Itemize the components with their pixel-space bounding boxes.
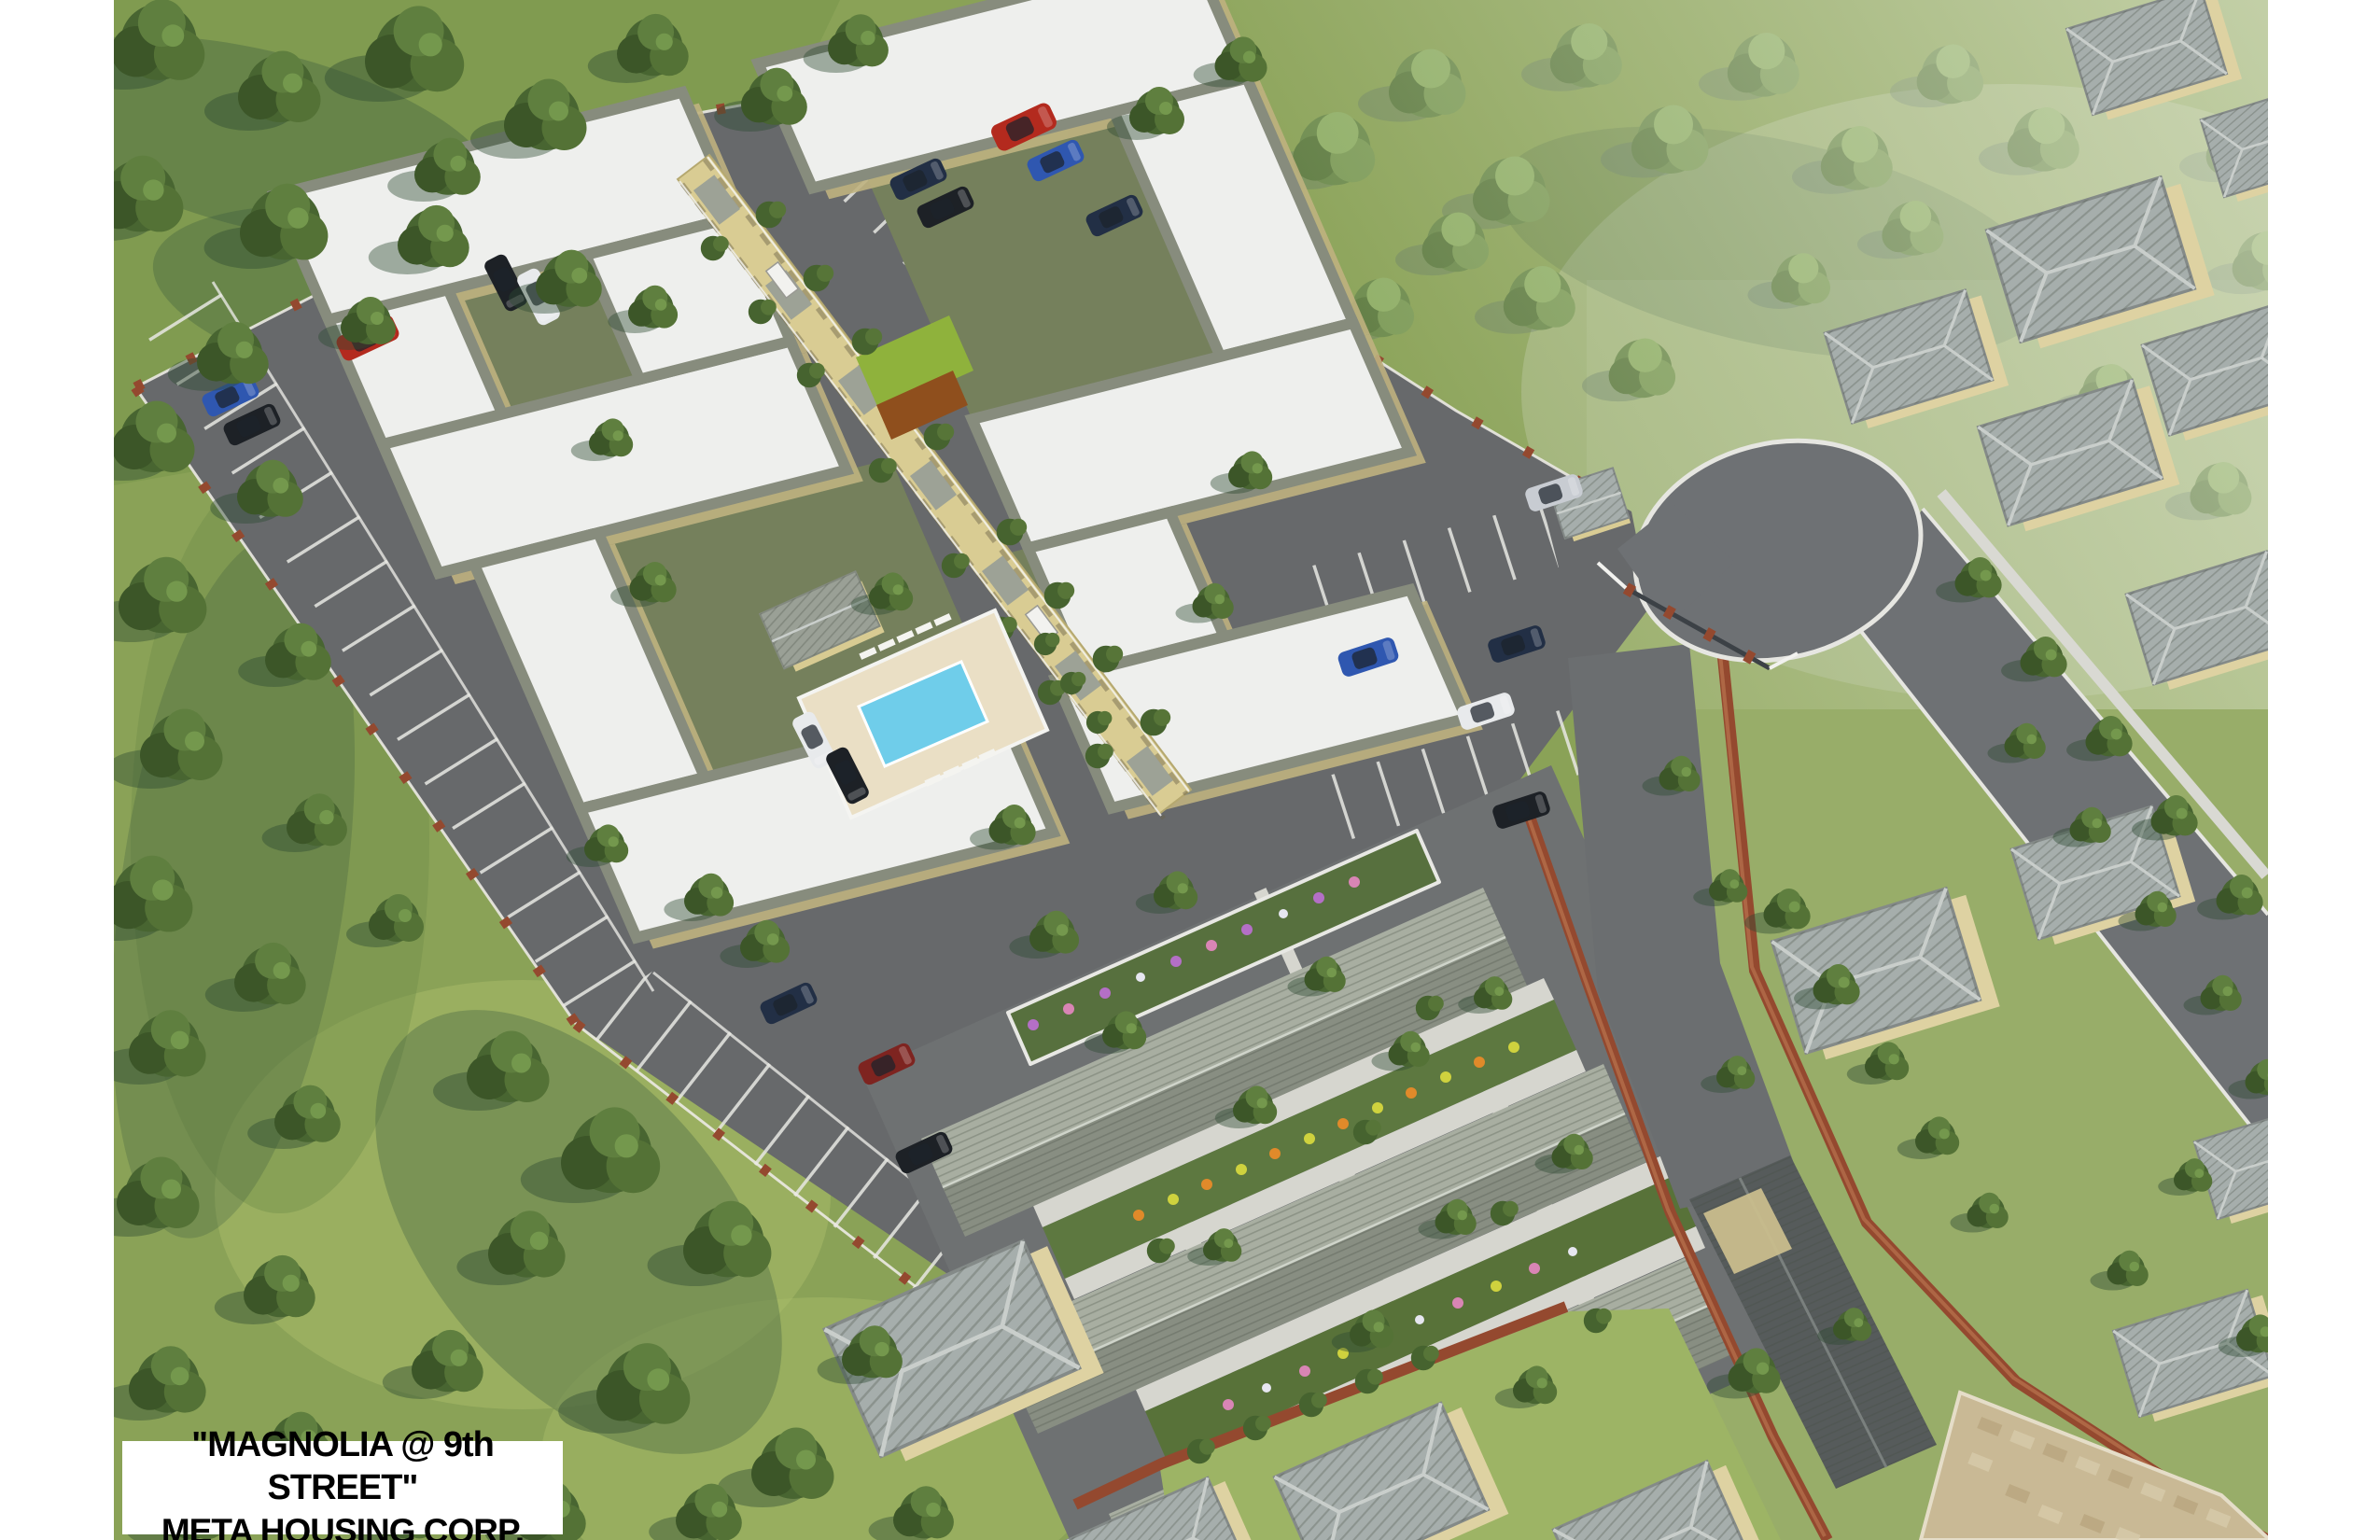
project-title: "MAGNOLIA @ 9th STREET" [122, 1423, 563, 1510]
title-card: "MAGNOLIA @ 9th STREET" META HOUSING COR… [122, 1441, 563, 1534]
aerial-site-rendering [0, 0, 2380, 1540]
rendering-page: "MAGNOLIA @ 9th STREET" META HOUSING COR… [0, 0, 2380, 1540]
developer-name: META HOUSING CORP. [161, 1510, 524, 1540]
